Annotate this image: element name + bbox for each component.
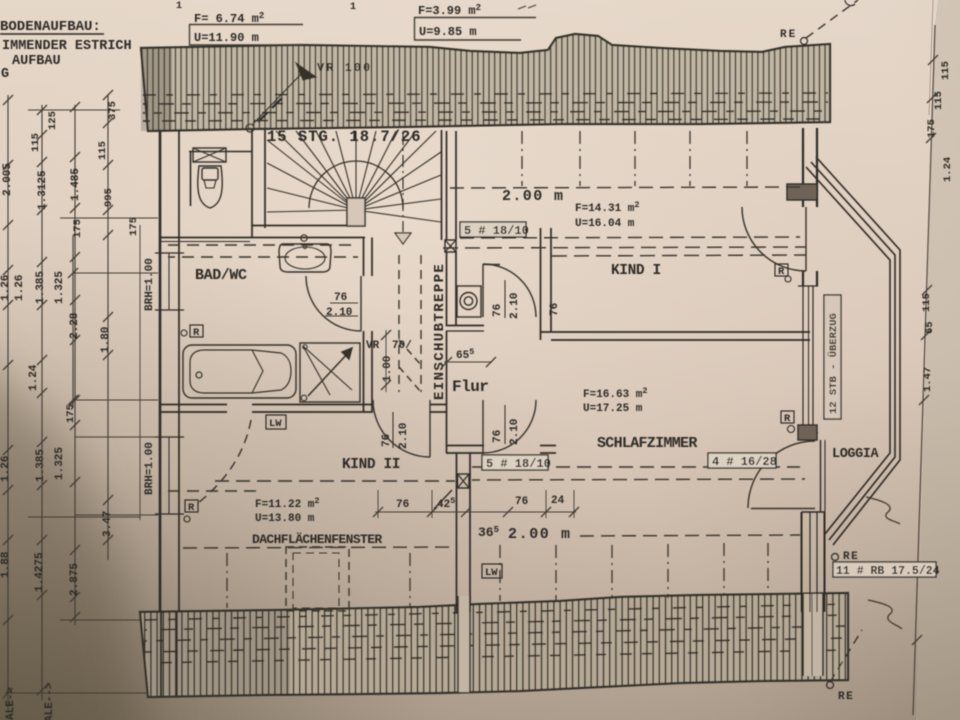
svg-text:65: 65	[924, 321, 936, 334]
svg-text:11 # RB 17.5/24: 11 # RB 17.5/24	[836, 565, 940, 578]
svg-text:24: 24	[551, 495, 565, 507]
svg-text:175: 175	[65, 404, 77, 423]
svg-text:76: 76	[334, 292, 347, 304]
svg-text:125: 125	[47, 111, 59, 130]
svg-text:SCHLAFZIMMER: SCHLAFZIMMER	[597, 435, 697, 452]
svg-text:BRH=1.00: BRH=1.00	[144, 442, 156, 495]
svg-text:1.385: 1.385	[35, 271, 47, 304]
svg-text:175: 175	[128, 217, 140, 236]
svg-text:76: 76	[381, 434, 393, 447]
svg-text:U=17.25 m: U=17.25 m	[583, 403, 643, 415]
svg-text:U=9.85 m: U=9.85 m	[419, 25, 477, 39]
svg-text:115: 115	[97, 141, 109, 160]
svg-text:ALE->: ALE->	[5, 687, 17, 720]
svg-text:175: 175	[72, 219, 84, 238]
svg-text:DACHFLÄCHENFENSTER: DACHFLÄCHENFENSTER	[252, 532, 382, 547]
svg-text:Flur: Flur	[452, 378, 488, 396]
svg-text:F=3.99 m2: F=3.99 m2	[418, 3, 481, 18]
svg-text:LW: LW	[269, 418, 282, 430]
svg-text:2.28: 2.28	[69, 312, 81, 339]
svg-text:115: 115	[933, 91, 945, 110]
svg-text:IMMENDER ESTRICH: IMMENDER ESTRICH	[2, 39, 132, 54]
svg-text:RE: RE	[843, 551, 859, 563]
svg-text:BAD/WC: BAD/WC	[195, 267, 247, 284]
svg-text:1.80: 1.80	[100, 327, 112, 353]
svg-text:2.005: 2.005	[2, 163, 14, 196]
svg-text:1.385: 1.385	[35, 449, 47, 482]
svg-text:1.26: 1.26	[0, 456, 12, 482]
svg-text:1.88: 1.88	[0, 551, 12, 578]
svg-text:1: 1	[176, 1, 182, 12]
svg-text:BRH=1.00: BRH=1.00	[144, 258, 156, 311]
svg-text:1.24: 1.24	[28, 364, 40, 391]
svg-text:175: 175	[926, 119, 938, 138]
svg-text:RE: RE	[838, 691, 854, 703]
svg-text:76: 76	[492, 430, 504, 443]
svg-text:2.00 m: 2.00 m	[502, 188, 564, 205]
svg-text:1.26: 1.26	[0, 275, 12, 301]
svg-text:F=11.22 m2: F=11.22 m2	[255, 496, 320, 511]
svg-text:76: 76	[396, 499, 409, 511]
svg-text:76: 76	[549, 303, 561, 316]
svg-text:R: R	[784, 413, 791, 425]
svg-text:KIND II: KIND II	[342, 457, 400, 473]
svg-text:F= 6.74 m2: F= 6.74 m2	[194, 11, 264, 26]
svg-text:U=13.80 m: U=13.80 m	[255, 513, 315, 525]
svg-text:LOGGIA: LOGGIA	[832, 447, 880, 462]
svg-text:1.485: 1.485	[70, 168, 82, 201]
svg-text:R: R	[193, 327, 200, 339]
svg-text:ALE-->: ALE-->	[44, 682, 56, 720]
svg-text:1.00: 1.00	[382, 356, 394, 382]
svg-text:5 # 18/10: 5 # 18/10	[486, 457, 551, 471]
svg-text:115: 115	[940, 61, 952, 80]
svg-text:F=16.63 m2: F=16.63 m2	[583, 386, 648, 401]
svg-text:1.26: 1.26	[14, 275, 26, 301]
svg-text:375: 375	[107, 101, 119, 120]
svg-text:3.47: 3.47	[102, 511, 114, 537]
svg-text:R: R	[188, 502, 195, 514]
svg-text:12 STB - ÜBERZUG: 12 STB - ÜBERZUG	[827, 313, 840, 414]
svg-text:1.325: 1.325	[54, 447, 66, 480]
svg-text:15 STG. 18.7/26: 15 STG. 18.7/26	[267, 128, 422, 146]
svg-text:2.10: 2.10	[398, 423, 410, 449]
svg-text:VR: VR	[366, 340, 380, 352]
svg-text:76: 76	[492, 304, 504, 317]
svg-text:LW: LW	[485, 567, 498, 579]
svg-text:1.47: 1.47	[922, 367, 934, 392]
svg-text:4 # 16/28: 4 # 16/28	[712, 455, 777, 469]
svg-text:995: 995	[103, 188, 115, 207]
svg-text:115: 115	[921, 293, 933, 312]
svg-text:VR 100: VR 100	[317, 61, 372, 75]
svg-text:AUFBAU: AUFBAU	[12, 54, 61, 69]
svg-text:1.3125: 1.3125	[37, 170, 49, 210]
svg-text:2.10: 2.10	[509, 419, 521, 445]
svg-text:70/: 70/	[392, 340, 412, 352]
svg-text:2.10: 2.10	[509, 293, 521, 319]
svg-text:1.325: 1.325	[54, 271, 66, 304]
svg-text:1.4275: 1.4275	[34, 552, 46, 592]
svg-text:EINSCHUBTREPPE: EINSCHUBTREPPE	[432, 263, 448, 400]
svg-text:76: 76	[515, 496, 528, 508]
svg-text:2.10: 2.10	[326, 307, 352, 319]
svg-text:RE: RE	[780, 29, 797, 41]
svg-text:R: R	[778, 266, 785, 278]
svg-text:KIND I: KIND I	[611, 263, 661, 279]
svg-text:U=16.04 m: U=16.04 m	[575, 218, 635, 230]
svg-text:1.24: 1.24	[942, 157, 954, 182]
svg-text:BODENAUFBAU:: BODENAUFBAU:	[0, 19, 101, 35]
svg-text:5 # 18/10: 5 # 18/10	[464, 224, 529, 238]
svg-text:1: 1	[350, 2, 356, 13]
svg-text:115: 115	[30, 133, 42, 152]
svg-text:2.875: 2.875	[69, 563, 81, 596]
svg-text:F=14.31 m2: F=14.31 m2	[575, 200, 640, 215]
svg-text:2.00 m: 2.00 m	[508, 526, 572, 543]
svg-text:U=11.90 m: U=11.90 m	[194, 31, 259, 45]
svg-text:G: G	[1, 67, 9, 82]
